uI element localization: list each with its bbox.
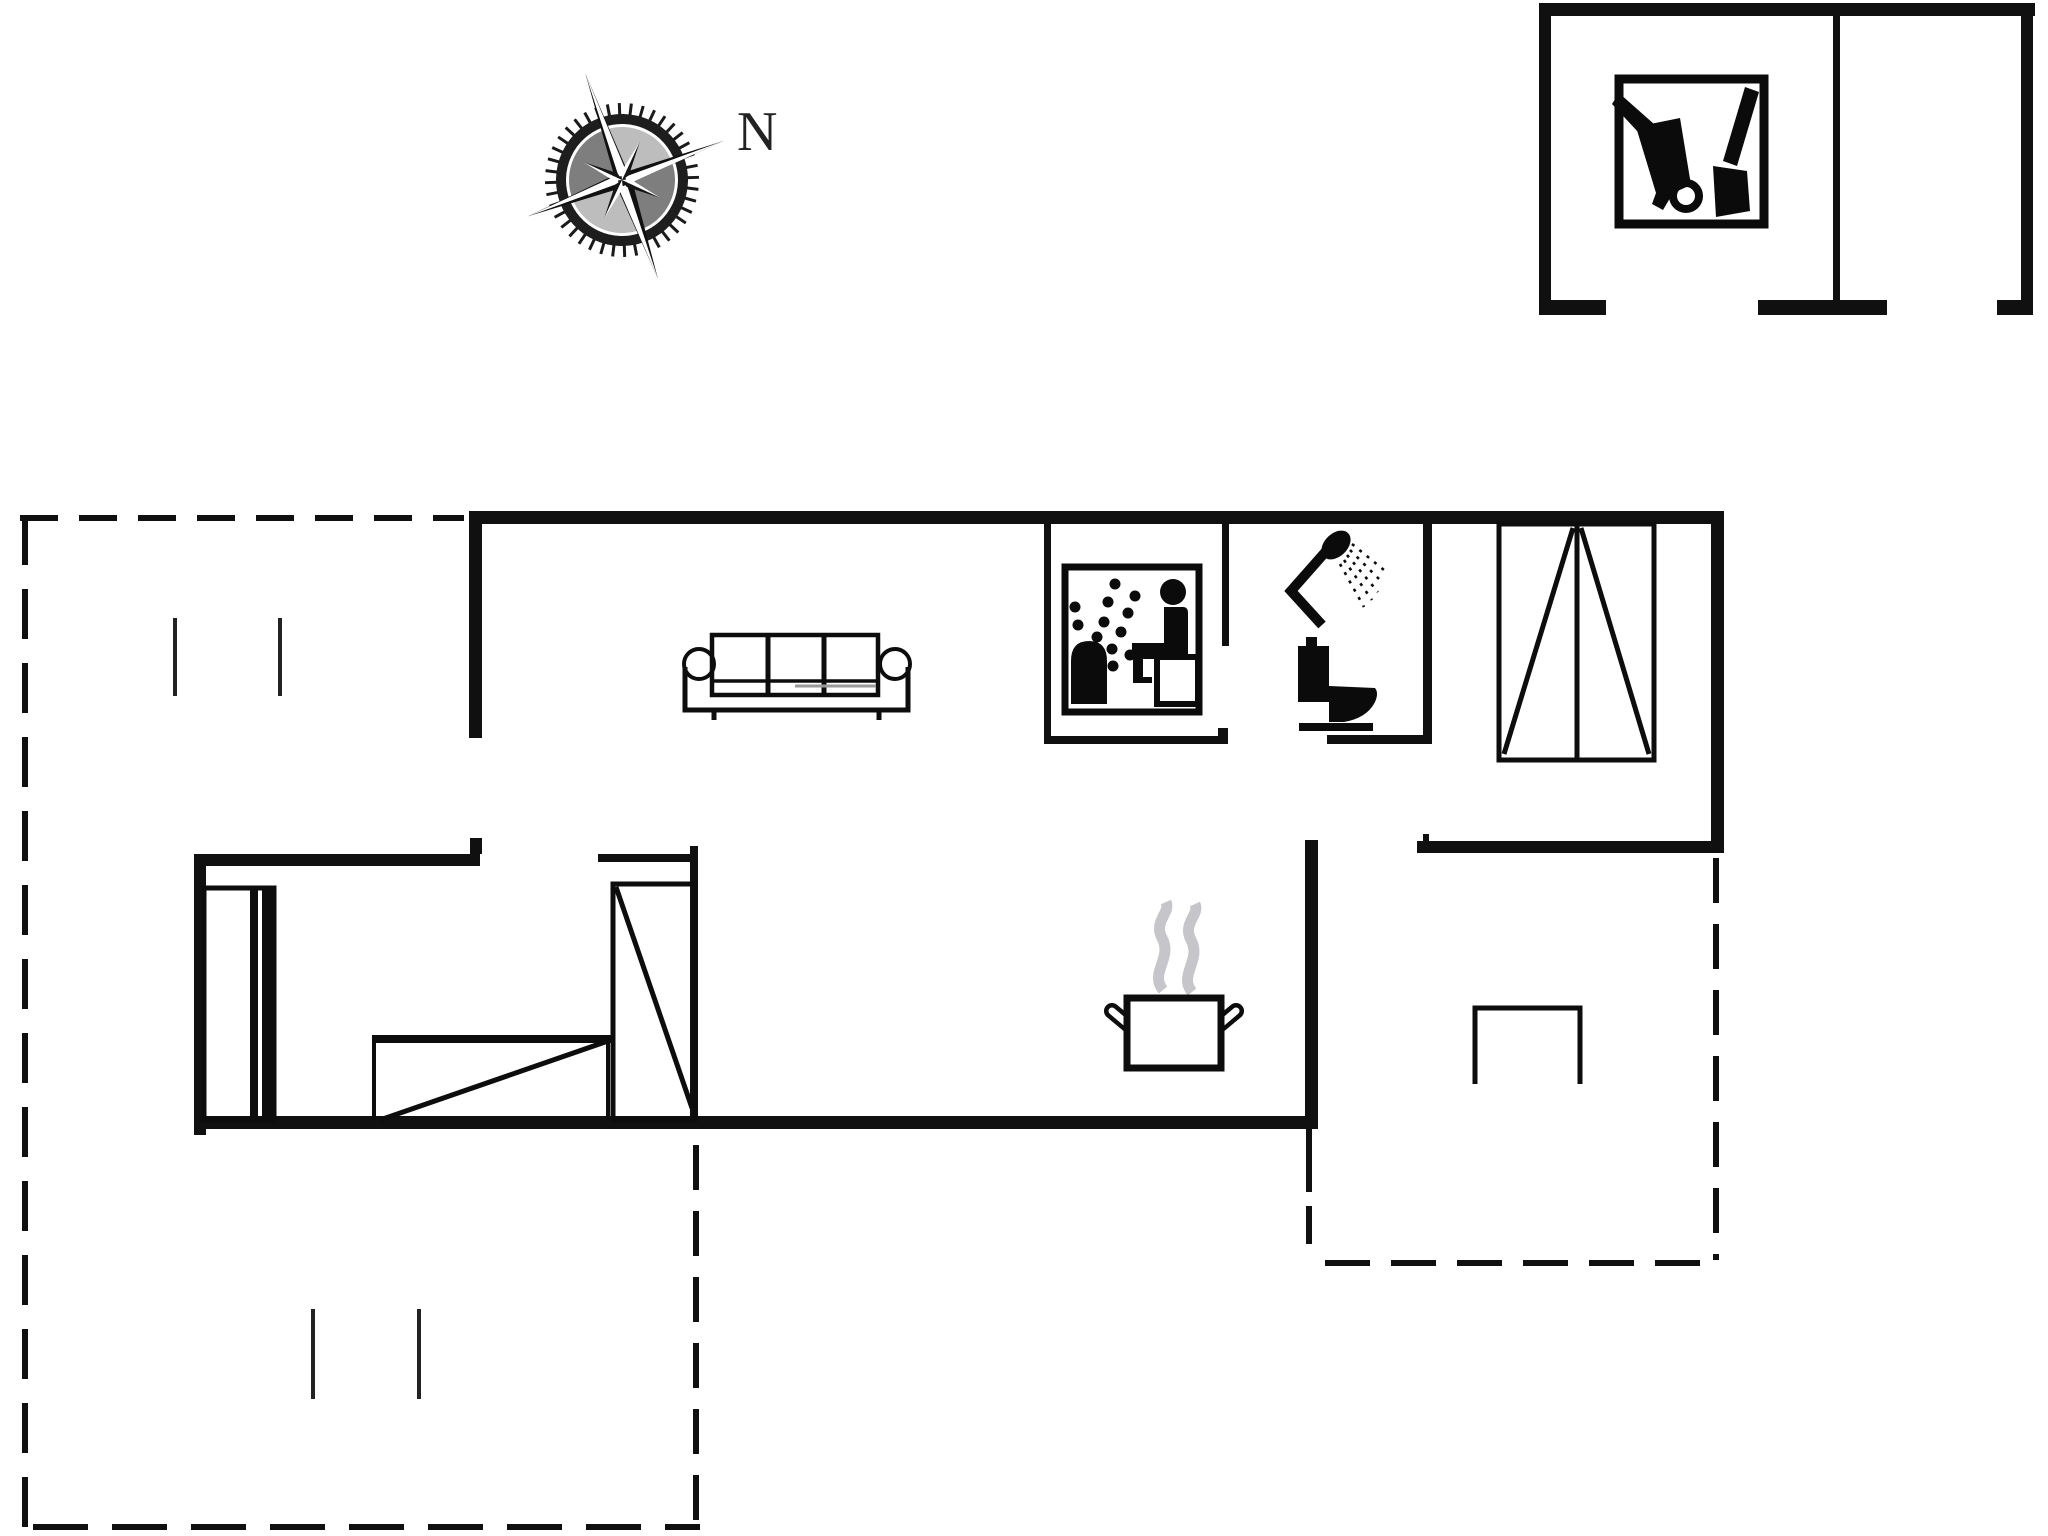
svg-text:N: N — [737, 101, 777, 163]
